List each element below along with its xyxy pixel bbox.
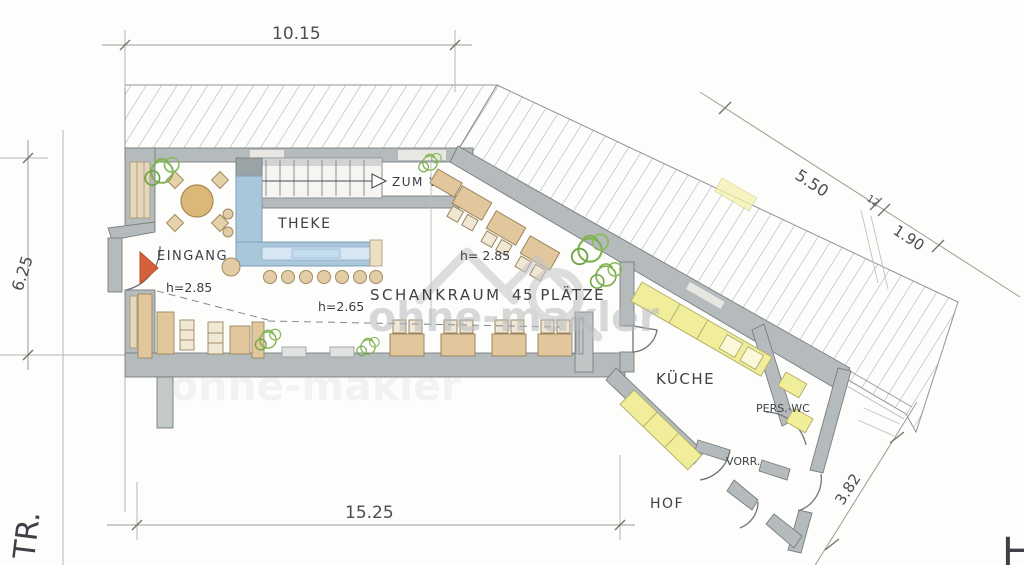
label-schankraum: SCHANKRAUM	[370, 286, 502, 304]
label-hof: HOF	[650, 496, 684, 512]
dim-diag-b: 1.90	[890, 221, 928, 254]
label-schankraum-seats: 45 PLÄTZE	[512, 285, 605, 304]
floor-plan-page: ZUM WC	[0, 0, 1024, 565]
dim-left: 6.25	[8, 253, 37, 293]
label-height-front: h=2.65	[318, 299, 364, 314]
label-theke: THEKE	[277, 216, 331, 232]
dim-diag-small: 12	[864, 193, 881, 209]
label-height-rear: h= 2.85	[460, 248, 510, 263]
floor-plan-canvas: ZUM WC	[0, 0, 1024, 565]
dim-diag-a: 5.50	[792, 165, 832, 200]
label-kueche: KÜCHE	[656, 369, 715, 388]
stairs	[252, 158, 386, 198]
label-eingang: EINGANG	[157, 249, 228, 264]
dim-diag-c: 3.82	[831, 470, 864, 508]
dim-bottom: 15.25	[345, 503, 394, 523]
dim-top: 10.15	[272, 24, 321, 44]
entrance-door-marker	[140, 252, 158, 284]
entrance-table-group	[167, 172, 229, 232]
label-height-entrance: h=2.85	[166, 280, 212, 295]
street-label: TR.	[7, 509, 48, 562]
hof-door-arc	[798, 474, 821, 511]
corner-letter: H	[1002, 530, 1024, 565]
label-pers-wc: PERS.-WC	[756, 402, 810, 415]
watermark-text-tile2: ohne-makler	[170, 362, 462, 410]
label-vorr: VORR.	[726, 455, 760, 468]
